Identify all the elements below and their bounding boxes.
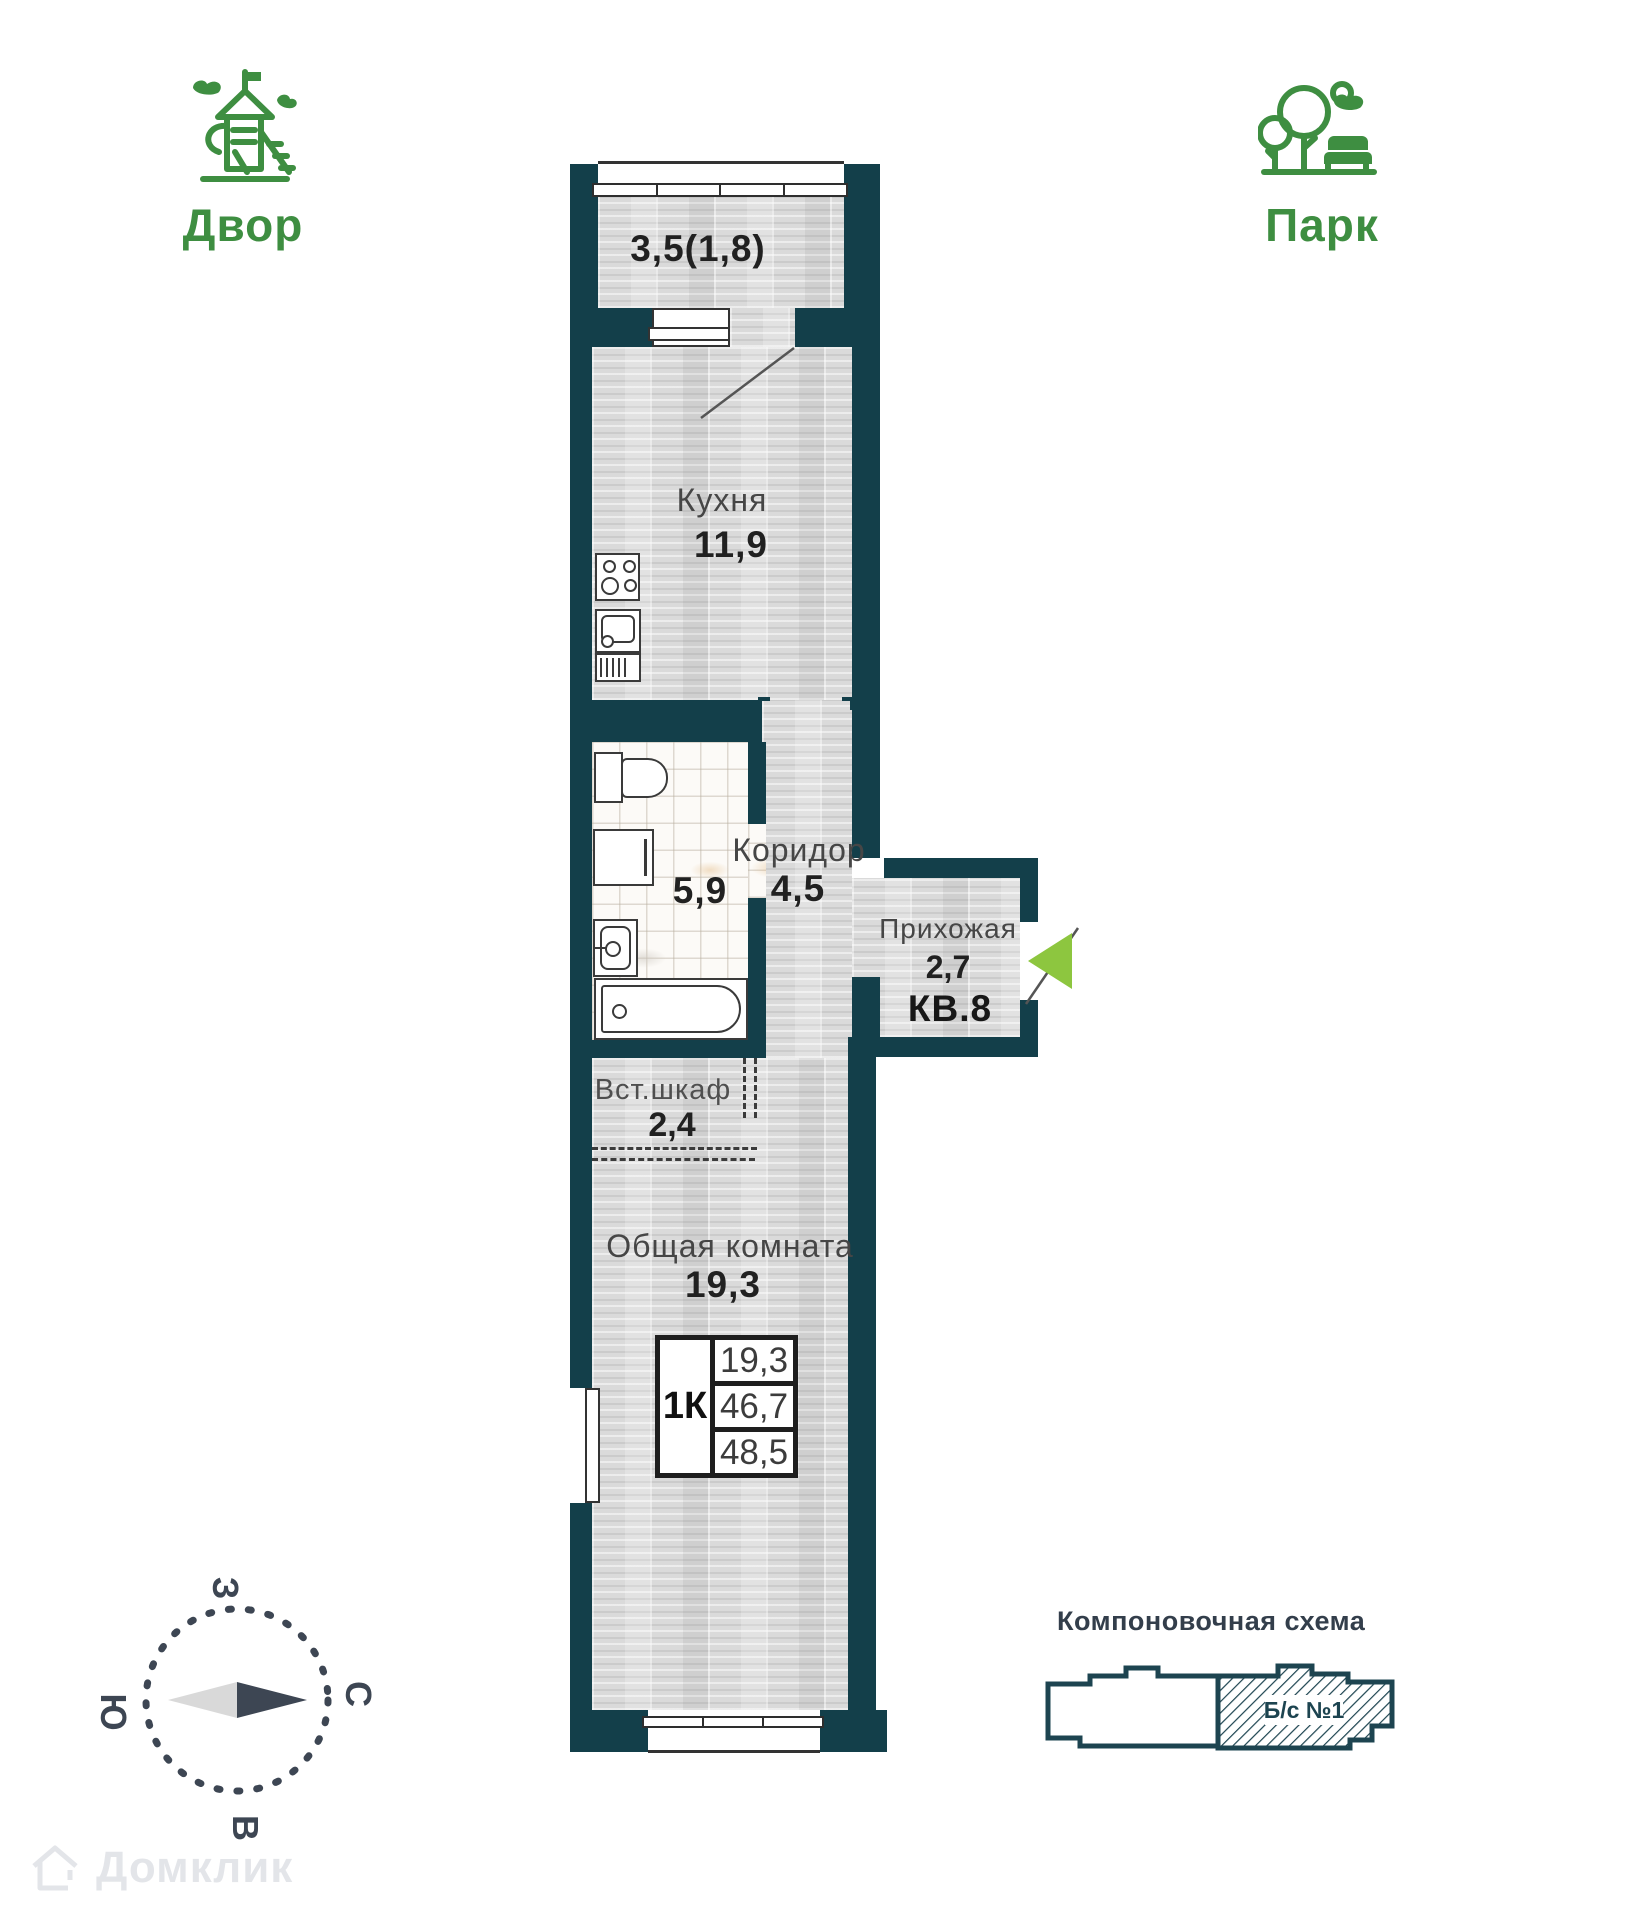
apartment-info-table: 1К 19,3 46,7 48,5 [655, 1335, 798, 1478]
domclick-house-icon [28, 1840, 82, 1896]
kitchen-sink-icon [595, 609, 641, 653]
kitchen-area: 11,9 [631, 524, 831, 566]
wall-bathroom-bottom [570, 1040, 766, 1058]
wall [570, 308, 592, 1388]
block-section-label: Б/с №1 [1264, 1697, 1345, 1723]
door-jamb-mark [758, 697, 770, 710]
bottom-window-bay [648, 1728, 820, 1750]
closet-area: 2,4 [572, 1106, 772, 1145]
compass-west: З [203, 1566, 247, 1610]
compass-needle-tip [237, 1682, 307, 1718]
closet-dashed-line [592, 1147, 757, 1150]
wall-hallway-top [884, 858, 1038, 878]
building-schematic: Б/с №1 [1040, 1655, 1405, 1755]
bottom-window-frame [644, 1716, 824, 1728]
balcony-door-swing [690, 300, 805, 430]
balcony-area: 3,5(1,8) [598, 228, 798, 270]
toilet-tank-icon [594, 752, 623, 803]
total-area-value: 48,5 [715, 1432, 793, 1473]
wall-hallway-bottom [848, 1037, 1038, 1057]
balcony-glazing-line [598, 161, 844, 164]
watermark: Домклик [28, 1840, 293, 1896]
closet-label: Вст.шкаф [563, 1074, 763, 1107]
floor-plan-page: Двор Парк [0, 0, 1636, 1920]
bathroom-sink-icon [593, 919, 638, 977]
kitchen-label: Кухня [622, 482, 822, 519]
closet-dashed-line [592, 1158, 755, 1161]
hallway-area: 2,7 [848, 949, 1048, 986]
balcony-railing [594, 183, 848, 197]
hallway-label: Прихожая [848, 913, 1048, 945]
dish-drainer-icon [595, 653, 641, 682]
compass-icon [130, 1590, 350, 1814]
living-room-window-frame [585, 1388, 600, 1503]
door-jamb-mark [842, 697, 854, 710]
wall-bottom [570, 1710, 648, 1752]
compass-north: С [336, 1672, 380, 1716]
wall [844, 164, 880, 308]
apartment-number: КВ.8 [850, 988, 1050, 1030]
wall-bottom [820, 1710, 887, 1752]
yard-label: Двор [143, 198, 343, 252]
living-room-label: Общая комната [580, 1228, 880, 1265]
compass-south: Ю [91, 1690, 135, 1734]
toilet-bowl-icon [621, 758, 668, 798]
apartment-type: 1К [660, 1340, 715, 1473]
wall [795, 308, 880, 347]
wall-bathroom [748, 898, 766, 1040]
wall-bathroom [748, 742, 766, 824]
compass-needle-tail [168, 1682, 237, 1718]
corridor-label: Коридор [699, 832, 899, 869]
bottom-window-outer-line [648, 1750, 820, 1753]
apartment-area-value: 46,7 [715, 1386, 793, 1432]
watermark-text: Домклик [96, 1843, 293, 1893]
wall-kitchen-bathroom [592, 700, 762, 742]
park-icon [1258, 76, 1380, 188]
schematic-title: Компоновочная схема [1057, 1606, 1365, 1637]
living-room-area: 19,3 [573, 1264, 873, 1306]
playground-icon [185, 60, 305, 192]
park-label: Парк [1222, 198, 1422, 252]
bathtub-icon [594, 978, 748, 1040]
living-area-value: 19,3 [715, 1340, 793, 1386]
wall [848, 1037, 876, 1752]
corridor-area: 4,5 [698, 868, 898, 910]
wall [852, 347, 880, 858]
